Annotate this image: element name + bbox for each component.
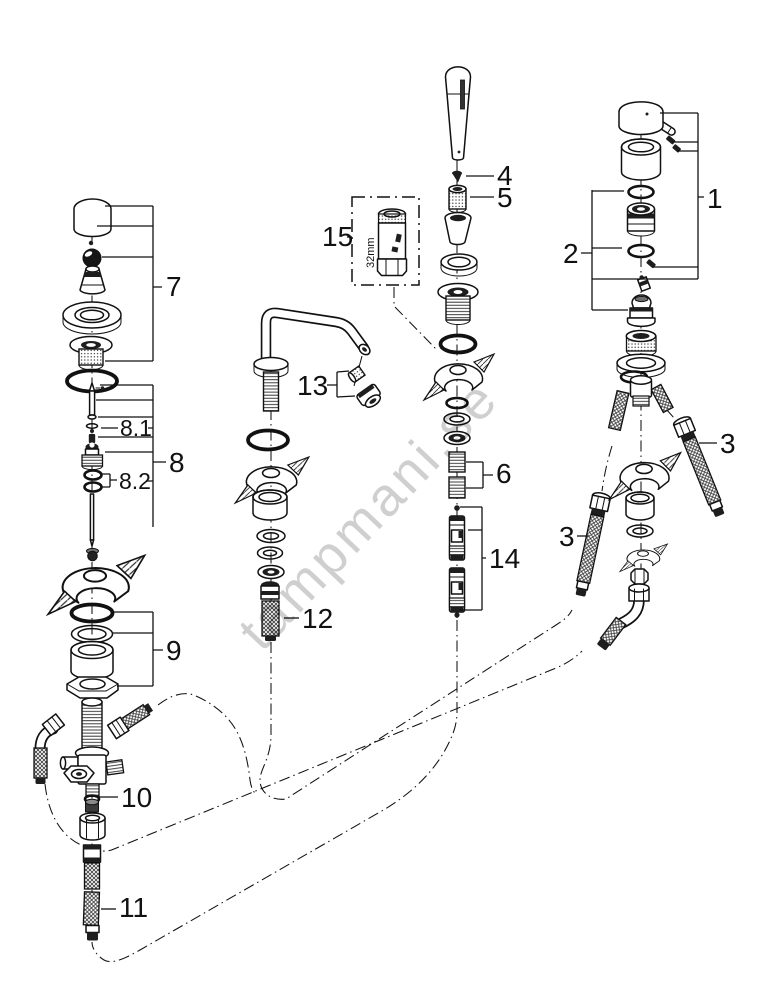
drain-and-tee-column (34, 199, 155, 941)
part-label-2: 2 (563, 238, 579, 269)
spout-shank (264, 372, 279, 411)
part-label-15: 15 (322, 221, 353, 252)
knob-ball (83, 249, 101, 267)
dome-cap-fitting (626, 331, 656, 357)
part-label-9: 9 (166, 635, 182, 666)
set-screw-dot (89, 241, 93, 245)
spacer-sleeve-9 (71, 642, 113, 680)
mounting-nut-9 (67, 677, 118, 698)
part-label-6: 6 (496, 458, 512, 489)
part-label-8: 8 (169, 447, 185, 478)
cartridge-ring-unit (628, 203, 655, 236)
part-label-8-2: 8.2 (119, 468, 151, 494)
check-valve-1 (450, 516, 465, 560)
routing-spout-hose (260, 610, 572, 799)
part-label-11: 11 (119, 892, 148, 923)
tool-box-15: 32mm (352, 197, 419, 285)
cartridge (628, 295, 656, 326)
pull-rod-pin (88, 383, 104, 419)
routing-left-supply (45, 651, 582, 851)
mixer-column (572, 102, 729, 651)
clamp-horseshoe (620, 544, 668, 572)
ball-14-top (454, 505, 460, 511)
rod-ball-end (87, 548, 99, 560)
part-label-10: 10 (121, 782, 152, 813)
o-ring-spout (248, 431, 288, 450)
diagram-canvas: 32mm (0, 0, 775, 1000)
part-label-7: 7 (166, 271, 182, 302)
part-label-5: 5 (497, 182, 513, 213)
tool-size-label: 32mm (365, 237, 377, 268)
cartridge-stem (637, 274, 651, 291)
part-label-14: 14 (489, 543, 520, 574)
tee-nipple-right (108, 700, 155, 738)
tee-elbow-left (34, 714, 64, 784)
valve-cone (80, 266, 105, 294)
small-nut-mixer (631, 569, 648, 584)
routing-tool (394, 287, 436, 349)
shroud-sleeve (622, 139, 661, 180)
hand-shower-wand (446, 67, 471, 160)
flange-ring (63, 302, 121, 334)
drain-valve-piece (82, 442, 103, 469)
spacer-sleeve-spout (253, 490, 287, 520)
o-ring-shower (441, 336, 476, 353)
flanged-ring (441, 254, 477, 276)
routing-valve-left (602, 446, 612, 491)
spacer-sleeve-mixer (626, 492, 654, 520)
part-label-3-left: 3 (559, 521, 575, 552)
cap-part (74, 199, 111, 237)
adapter-cup (445, 213, 471, 245)
check-valve-2 (450, 568, 465, 612)
part-label-1: 1 (707, 183, 723, 214)
elbow-outlet (596, 584, 649, 651)
exploded-parts-diagram: 32mm (0, 0, 775, 1000)
spout-tip-ring (347, 366, 365, 383)
holder-flange-thread (438, 284, 478, 325)
connection-hose-left (572, 491, 611, 597)
part-label-13: 13 (297, 370, 328, 401)
insert-5 (449, 185, 466, 212)
hose-11-connector (84, 845, 101, 862)
o-ring-small-2 (85, 483, 102, 492)
part-label-8-1: 8.1 (120, 415, 152, 441)
lever-handle (619, 102, 676, 137)
lift-rod (90, 494, 93, 546)
spout-tip-aerator (356, 383, 385, 411)
tee-body (60, 698, 123, 796)
bath-spout (266, 313, 372, 362)
hose-11-braid (83, 863, 99, 941)
filter-cone-4 (452, 171, 462, 183)
washer-mixer (627, 525, 653, 537)
handle-screws (666, 135, 682, 153)
routing-tee-branch (158, 694, 257, 795)
threaded-collar (70, 337, 112, 370)
bushing-10 (86, 799, 99, 812)
washer-spout-2 (258, 547, 283, 559)
o-ring-small-1 (85, 471, 102, 480)
hose-routing-lines (45, 287, 675, 962)
coupling-nut (80, 813, 105, 840)
ball-14-bottom (454, 612, 459, 617)
part-label-3-right: 3 (720, 428, 736, 459)
